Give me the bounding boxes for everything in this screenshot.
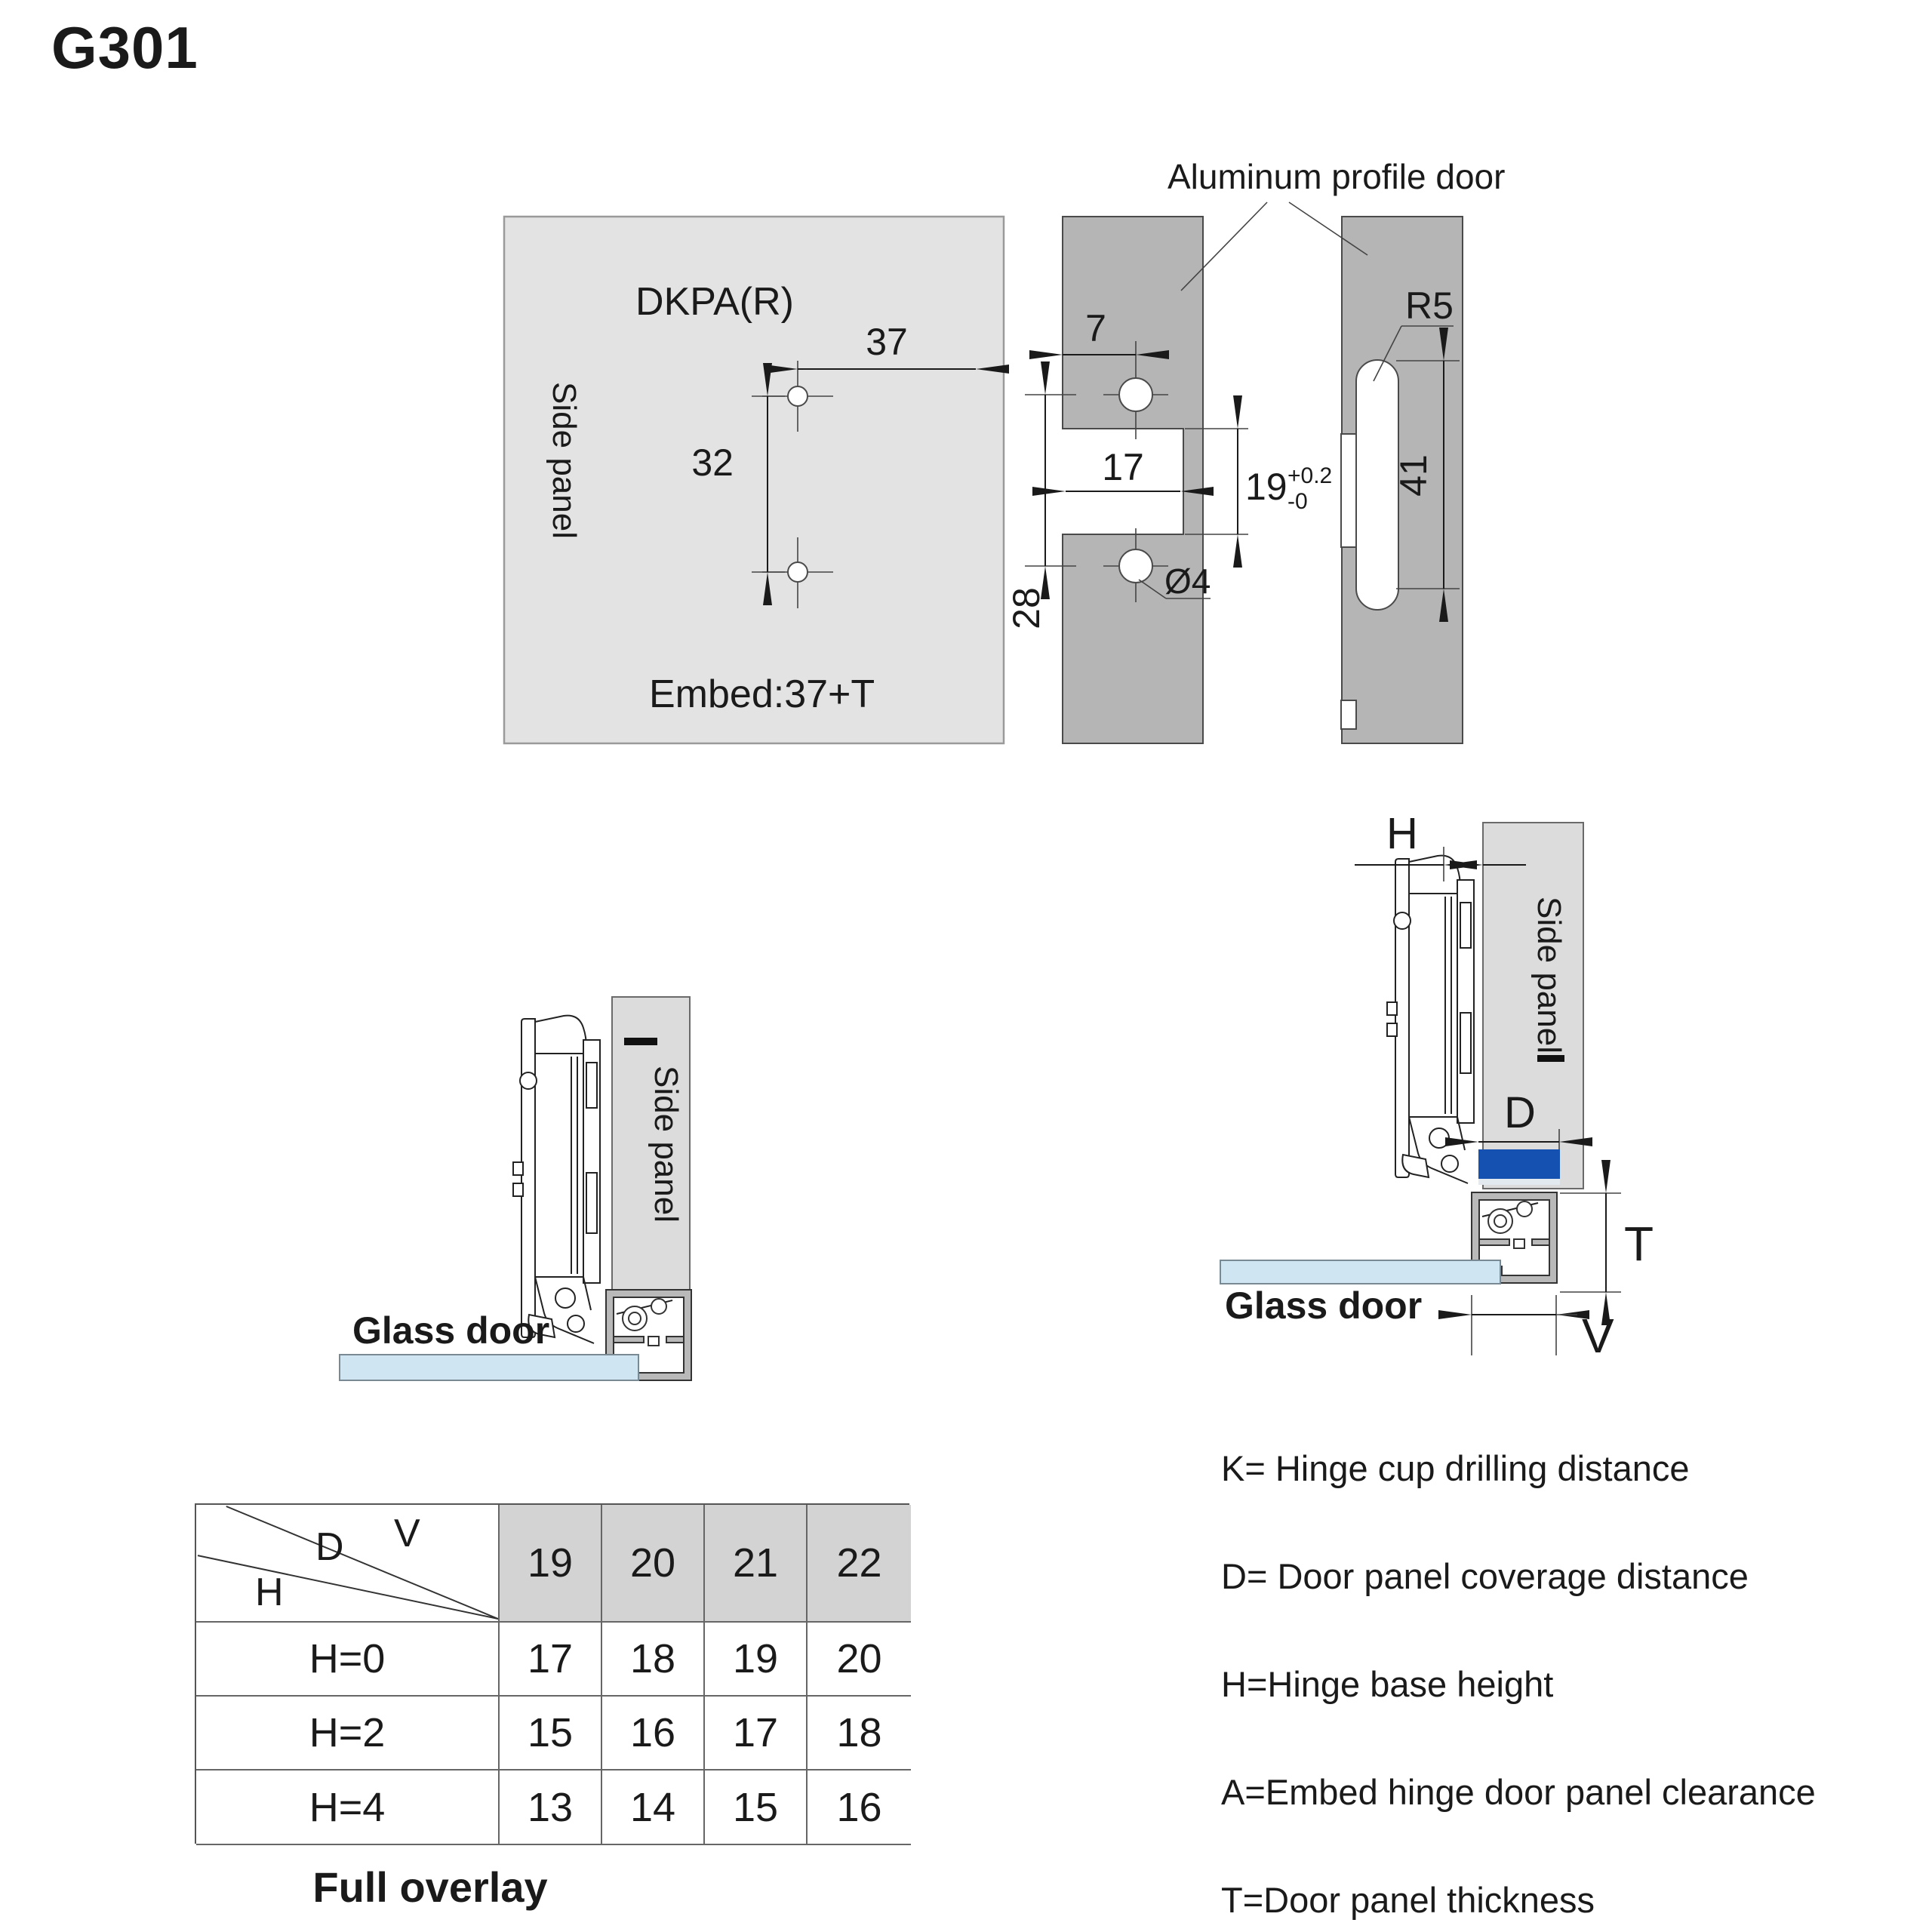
row-header: H=0 xyxy=(196,1623,500,1697)
svg-text:D: D xyxy=(1504,1088,1536,1137)
fixing-screw xyxy=(624,1038,657,1045)
profile-notch-small xyxy=(1341,700,1356,729)
svg-text:T: T xyxy=(1624,1217,1654,1271)
side-panel-label: Side panel xyxy=(648,1066,685,1223)
svg-text:+0.2: +0.2 xyxy=(1287,463,1332,488)
overlay-spec-table: D V H 19 20 21 22 H=0 17 18 19 20 H=2 15… xyxy=(195,1503,909,1844)
table-caption: Full overlay xyxy=(249,1863,611,1912)
coverage-bar-edge xyxy=(1478,1179,1560,1185)
glass-door-label: Glass door xyxy=(1225,1284,1422,1327)
table-value: 14 xyxy=(602,1770,705,1845)
legend-item: A=Embed hinge door panel clearance xyxy=(1221,1771,1870,1813)
table-value: 18 xyxy=(602,1623,705,1697)
legend: K= Hinge cup drilling distance D= Door p… xyxy=(1221,1447,1870,1932)
profile-side-drill-view: R5 41 xyxy=(1341,217,1463,743)
table-value: 17 xyxy=(705,1697,808,1770)
table-value: 18 xyxy=(808,1697,911,1770)
column-header: 20 xyxy=(602,1505,705,1623)
svg-text:41: 41 xyxy=(1392,454,1435,497)
row-header: H=2 xyxy=(196,1697,500,1770)
coverage-bar xyxy=(1478,1149,1560,1179)
legend-item: T=Door panel thickness xyxy=(1221,1879,1870,1921)
table-value: 15 xyxy=(705,1770,808,1845)
dimension-17: 17 xyxy=(1066,446,1180,491)
profile-notch xyxy=(1341,434,1356,547)
column-header: 19 xyxy=(500,1505,602,1623)
drawing-sheet: G301 xyxy=(0,0,1932,1932)
table-value: 19 xyxy=(705,1623,808,1697)
svg-text:17: 17 xyxy=(1102,446,1144,488)
legend-item: H=Hinge base height xyxy=(1221,1663,1870,1705)
embed-note: Embed:37+T xyxy=(649,672,875,716)
glass-door-pane xyxy=(1220,1260,1500,1284)
svg-text:R5: R5 xyxy=(1405,285,1454,327)
table-value: 13 xyxy=(500,1770,602,1845)
table-value: 16 xyxy=(808,1770,911,1845)
legend-item: D= Door panel coverage distance xyxy=(1221,1555,1870,1597)
assembly-view-right: Side panel H D Glass door xyxy=(1220,809,1654,1363)
table-value: 20 xyxy=(808,1623,911,1697)
fixing-screw xyxy=(1537,1055,1564,1062)
table-corner-cell: D V H xyxy=(196,1505,500,1623)
dimension-19: 19 +0.2 -0 xyxy=(1185,429,1332,534)
table-value: 16 xyxy=(602,1697,705,1770)
mounting-plate-drill-view: DKPA(R) Side panel 37 xyxy=(504,217,1004,743)
legend-item: K= Hinge cup drilling distance xyxy=(1221,1447,1870,1489)
svg-text:Ø4: Ø4 xyxy=(1164,561,1211,601)
side-panel-label: Side panel xyxy=(1531,897,1567,1054)
table-value: 15 xyxy=(500,1697,602,1770)
svg-text:37: 37 xyxy=(866,321,908,363)
svg-text:-0: -0 xyxy=(1287,489,1308,514)
glass-door-label: Glass door xyxy=(352,1309,549,1352)
side-panel-label: Side panel xyxy=(546,382,583,539)
row-header: H=4 xyxy=(196,1770,500,1845)
glass-door-pane xyxy=(340,1355,638,1380)
corner-diagonals xyxy=(196,1505,498,1621)
dimension-t: T xyxy=(1560,1193,1654,1292)
corner-label-h: H xyxy=(255,1570,284,1615)
svg-text:H: H xyxy=(1386,809,1418,858)
aluminum-profile-door-label: Aluminum profile door xyxy=(1168,157,1505,196)
corner-label-d: D xyxy=(315,1524,344,1570)
svg-text:V: V xyxy=(1582,1309,1614,1363)
svg-text:19: 19 xyxy=(1245,466,1287,508)
dimension-v: V xyxy=(1472,1295,1614,1363)
column-header: 22 xyxy=(808,1505,911,1623)
svg-text:28: 28 xyxy=(1005,587,1048,629)
column-header: 21 xyxy=(705,1505,808,1623)
plate-name-label: DKPA(R) xyxy=(635,280,794,324)
corner-label-v: V xyxy=(394,1511,420,1556)
hinge-art xyxy=(1387,856,1474,1183)
svg-text:7: 7 xyxy=(1085,307,1106,349)
svg-text:32: 32 xyxy=(691,441,734,484)
hinge-art xyxy=(513,1016,600,1343)
table-value: 17 xyxy=(500,1623,602,1697)
assembly-view-left: Side panel Glass door xyxy=(340,997,691,1380)
profile-front-drill-view: 7 17 19 +0.2 -0 28 xyxy=(1005,217,1332,743)
